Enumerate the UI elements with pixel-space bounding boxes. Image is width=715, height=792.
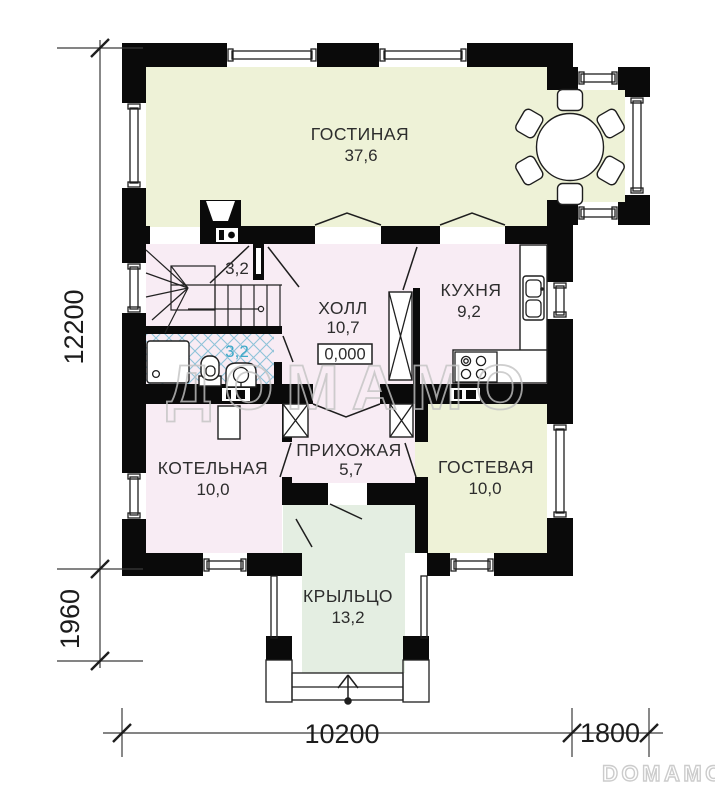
watermark-corner: DOMAMO [602, 761, 715, 786]
boiler-area: 10,0 [196, 480, 229, 499]
kitchen-area: 9,2 [457, 302, 481, 321]
hall-area: 10,7 [326, 318, 359, 337]
window [203, 553, 247, 576]
porch-rail [421, 576, 427, 638]
window [450, 553, 494, 576]
boiler-label: КОТЕЛЬНАЯ [158, 458, 268, 478]
window [379, 43, 467, 67]
living-room-area: 37,6 [344, 146, 377, 165]
guest-area: 10,0 [468, 479, 501, 498]
window [625, 97, 650, 195]
window [547, 424, 573, 518]
chair-icon [558, 184, 583, 205]
entry-area: 5,7 [339, 460, 363, 479]
porch-label: КРЫЛЬЦО [303, 586, 393, 606]
window [122, 473, 146, 519]
table-icon [537, 114, 604, 181]
living-room-label: ГОСТИНАЯ [311, 124, 409, 144]
dimension-bottom-bay: 1800 [580, 718, 640, 748]
porch-area: 13,2 [331, 608, 364, 627]
window [547, 282, 573, 319]
window [578, 202, 618, 225]
guest-label: ГОСТЕВАЯ [438, 457, 534, 477]
dimension-bottom-main: 10200 [304, 719, 379, 749]
watermark-center: ДОМАМО [166, 353, 537, 423]
window [122, 103, 146, 188]
porch-post [266, 660, 292, 702]
hall-label: ХОЛЛ [318, 298, 367, 318]
floor-plan-drawing: 0,000 ГОСТИНАЯ 37,6 ХОЛЛ 10,7 КУХНЯ 9,2 … [0, 0, 715, 792]
porch-column [266, 636, 292, 660]
dimension-left-main: 12200 [59, 289, 89, 364]
kitchen-sink-icon [523, 276, 544, 320]
porch-post [403, 660, 429, 702]
window [227, 43, 317, 67]
entry-label: ПРИХОЖАЯ [296, 440, 402, 460]
dimension-left-porch: 1960 [55, 589, 85, 649]
window [578, 67, 618, 90]
stair-area: 3,2 [225, 259, 249, 278]
porch-column [403, 636, 429, 660]
window [122, 263, 146, 313]
chair-icon [558, 90, 583, 111]
porch-rail [271, 576, 277, 638]
floor-plan: 0,000 ГОСТИНАЯ 37,6 ХОЛЛ 10,7 КУХНЯ 9,2 … [0, 0, 715, 792]
kitchen-label: КУХНЯ [441, 280, 502, 300]
